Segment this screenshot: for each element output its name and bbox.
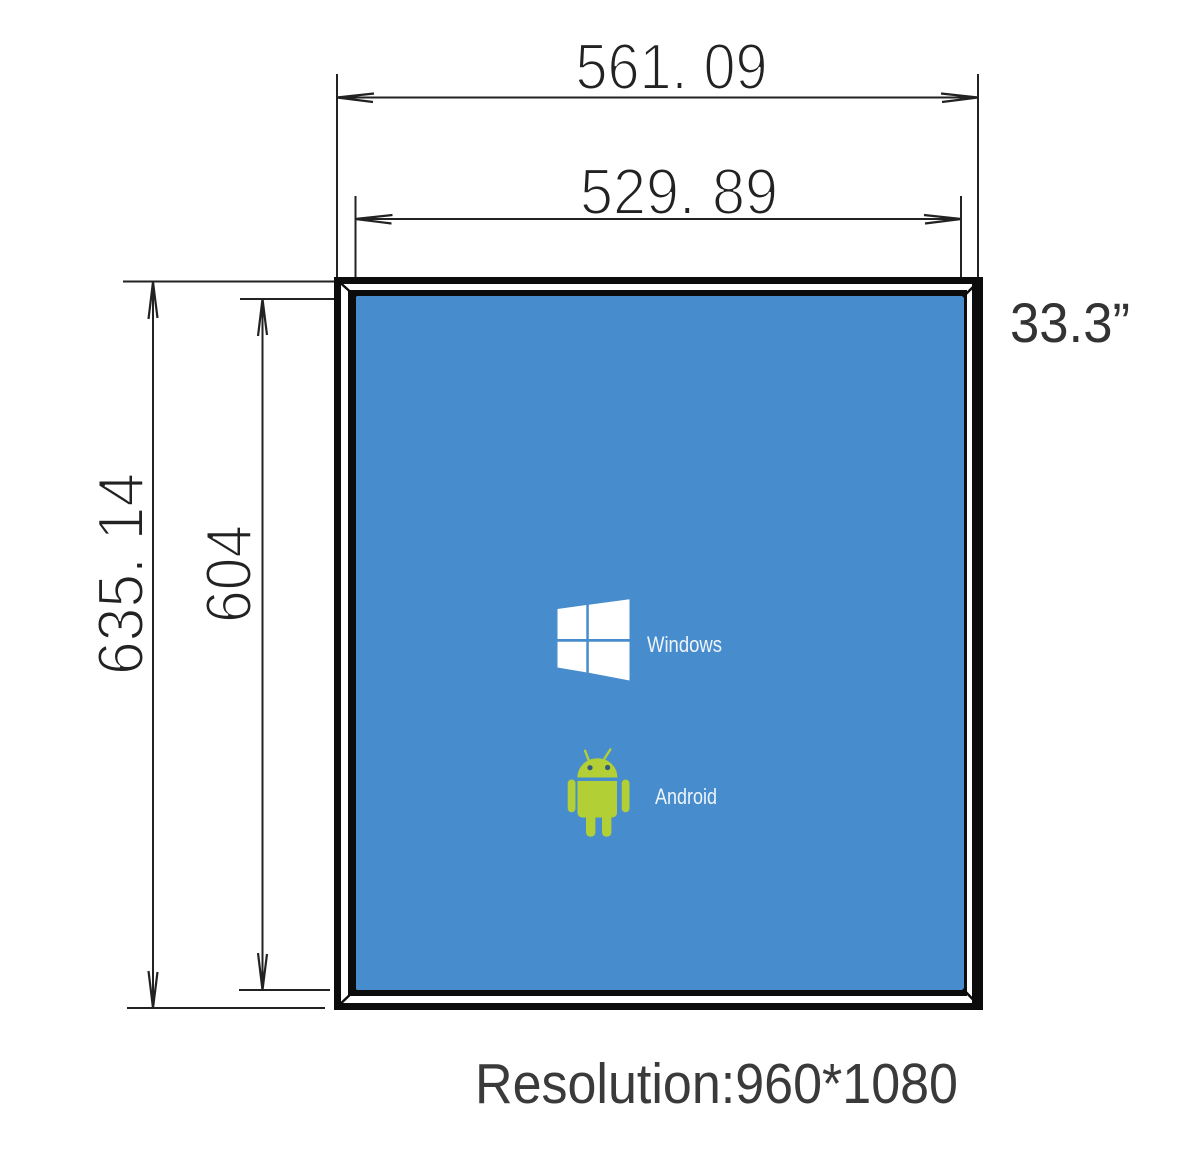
svg-text:33.3”: 33.3” [1010, 291, 1130, 354]
svg-text:Windows: Windows [647, 632, 722, 657]
svg-text:635. 14: 635. 14 [84, 473, 157, 675]
svg-text:604: 604 [192, 525, 265, 623]
svg-text:529. 89: 529. 89 [580, 155, 778, 228]
svg-text:Android: Android [655, 784, 717, 809]
svg-text:Resolution:960*1080: Resolution:960*1080 [475, 1052, 958, 1116]
svg-text:561. 09: 561. 09 [576, 30, 768, 103]
